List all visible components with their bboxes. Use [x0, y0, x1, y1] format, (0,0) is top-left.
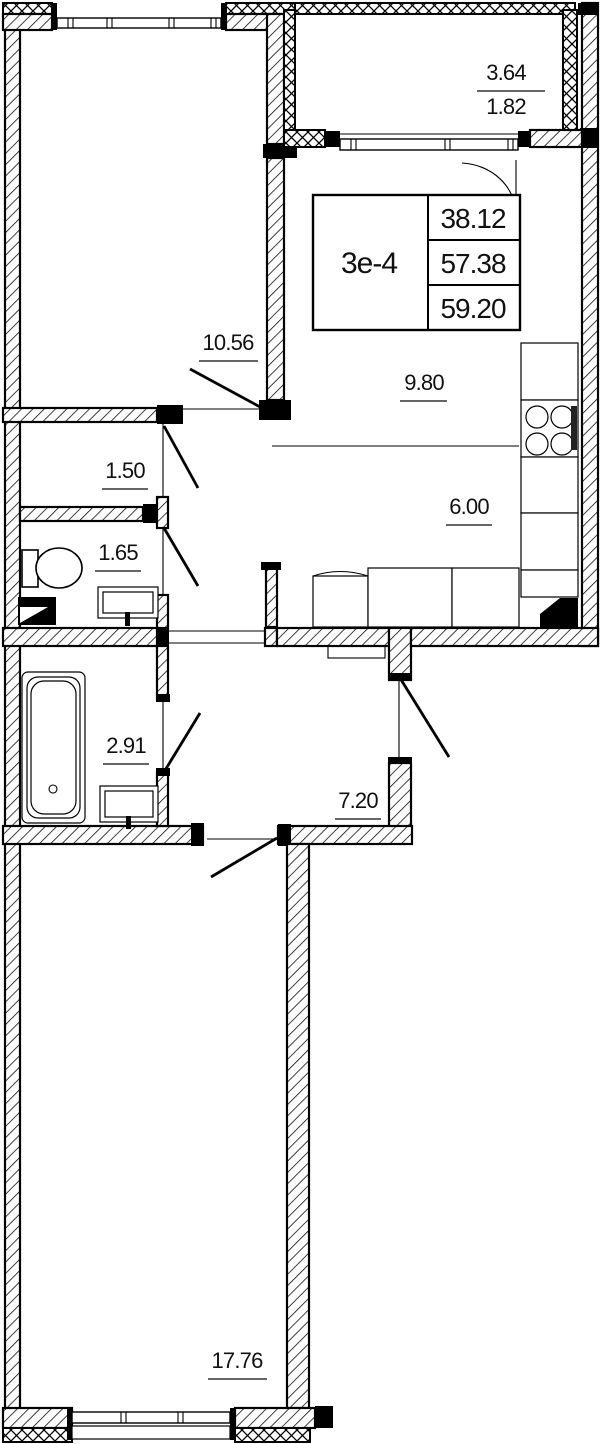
- wall-cap: [157, 405, 183, 424]
- label-bedroom-bottom: 17.76: [208, 1348, 267, 1379]
- wall-wc-top: [3, 408, 157, 422]
- balcony-label: 3.64 1.82: [477, 60, 545, 119]
- svg-text:9.80: 9.80: [404, 370, 444, 395]
- sink-wc: [98, 587, 158, 626]
- door-bathroom: [163, 700, 200, 772]
- wall-cap: [143, 504, 157, 523]
- balcony-wall-top: [295, 3, 575, 14]
- appliance-top-curve: [313, 572, 368, 577]
- svg-text:17.76: 17.76: [211, 1348, 263, 1373]
- door-bedroom-bottom: [207, 838, 277, 877]
- wall-top-inner-left: [3, 14, 52, 30]
- bathroom-partition-stub: [157, 646, 168, 700]
- balcony-window-band: [284, 130, 582, 150]
- door-wc-small: [163, 424, 198, 497]
- wall-cap: [388, 757, 412, 764]
- label-hallway: 7.20: [335, 788, 381, 819]
- wall-right: [582, 3, 598, 646]
- toilet: [22, 548, 82, 588]
- vent-corner: [540, 598, 578, 627]
- wall-bedroom-balcony: [267, 14, 284, 144]
- unit-label: 3e-4: [341, 247, 397, 280]
- label-wc-small: 1.50: [102, 458, 148, 489]
- bathtub: [22, 672, 85, 823]
- wall-hall-bottom: [278, 826, 412, 844]
- wall-bathroom-bottom: [3, 826, 203, 844]
- sink-bathroom: [100, 786, 158, 829]
- entrance-wall-stub: [389, 763, 411, 827]
- wall-bottom: [3, 1406, 333, 1442]
- label-living-zone: 9.80: [400, 370, 447, 401]
- floor-plan-page: 3e-4 38.12 57.38 59.20 3.64 1.82 10.56 9…: [0, 0, 600, 1444]
- wall-bedroom-living: [267, 158, 284, 400]
- door-wc-large: [163, 528, 198, 595]
- counter-unit: [521, 343, 578, 400]
- wall-cap: [261, 562, 281, 570]
- counter-unit: [521, 457, 578, 513]
- window-top: [57, 18, 221, 28]
- appliance: [313, 576, 368, 627]
- label-kitchen-zone: 6.00: [446, 494, 492, 525]
- svg-text:10.56: 10.56: [202, 330, 254, 355]
- svg-text:2.91: 2.91: [106, 733, 146, 758]
- unit-area-3: 59.20: [440, 293, 505, 324]
- svg-text:3.64: 3.64: [486, 60, 526, 85]
- wall-top-outer-left: [3, 3, 52, 14]
- unit-info-table: 3e-4 38.12 57.38 59.20: [313, 195, 520, 330]
- label-bathroom: 2.91: [103, 733, 149, 764]
- wall-cap: [578, 3, 598, 15]
- kitchen-jamb: [266, 568, 277, 627]
- unit-area-1: 38.12: [440, 203, 505, 234]
- svg-text:1.82: 1.82: [486, 94, 526, 119]
- floor-plan-drawing: 3e-4 38.12 57.38 59.20 3.64 1.82 10.56 9…: [0, 0, 600, 1444]
- wall-cap: [191, 823, 204, 846]
- door-entrance: [399, 678, 449, 763]
- svg-text:7.20: 7.20: [338, 788, 378, 813]
- window-jamb: [52, 3, 57, 30]
- unit-area-2: 57.38: [440, 248, 505, 279]
- wall-wc-divider: [20, 507, 143, 521]
- svg-text:6.00: 6.00: [449, 494, 489, 519]
- wall-bedroom-bottom-right: [287, 844, 309, 1408]
- door-bedroom-top: [168, 369, 262, 409]
- wall-left: [5, 14, 20, 1428]
- wall-cap: [278, 824, 291, 846]
- counter-unit: [521, 513, 578, 570]
- counter-unit: [521, 570, 578, 597]
- balcony-wall-right: [563, 10, 577, 130]
- sanitary-fixtures: [18, 548, 158, 829]
- counter-unit: [452, 568, 519, 627]
- stove-back-bar: [571, 406, 577, 450]
- stove: [521, 400, 578, 457]
- svg-text:1.50: 1.50: [105, 458, 145, 483]
- counter-row: [313, 568, 519, 627]
- svg-text:1.65: 1.65: [98, 540, 138, 565]
- label-bedroom-top: 10.56: [199, 330, 258, 361]
- wc-partition-stub: [157, 595, 168, 628]
- vent-shaft: [18, 597, 56, 625]
- label-wc-large: 1.65: [95, 540, 141, 571]
- wc-partition-stub: [157, 497, 168, 528]
- counter-unit: [368, 568, 452, 627]
- wall-middle: [3, 628, 598, 680]
- balcony-wall-left: [284, 10, 295, 130]
- bathroom-partition-stub: [157, 772, 168, 826]
- wall-cap: [259, 400, 291, 420]
